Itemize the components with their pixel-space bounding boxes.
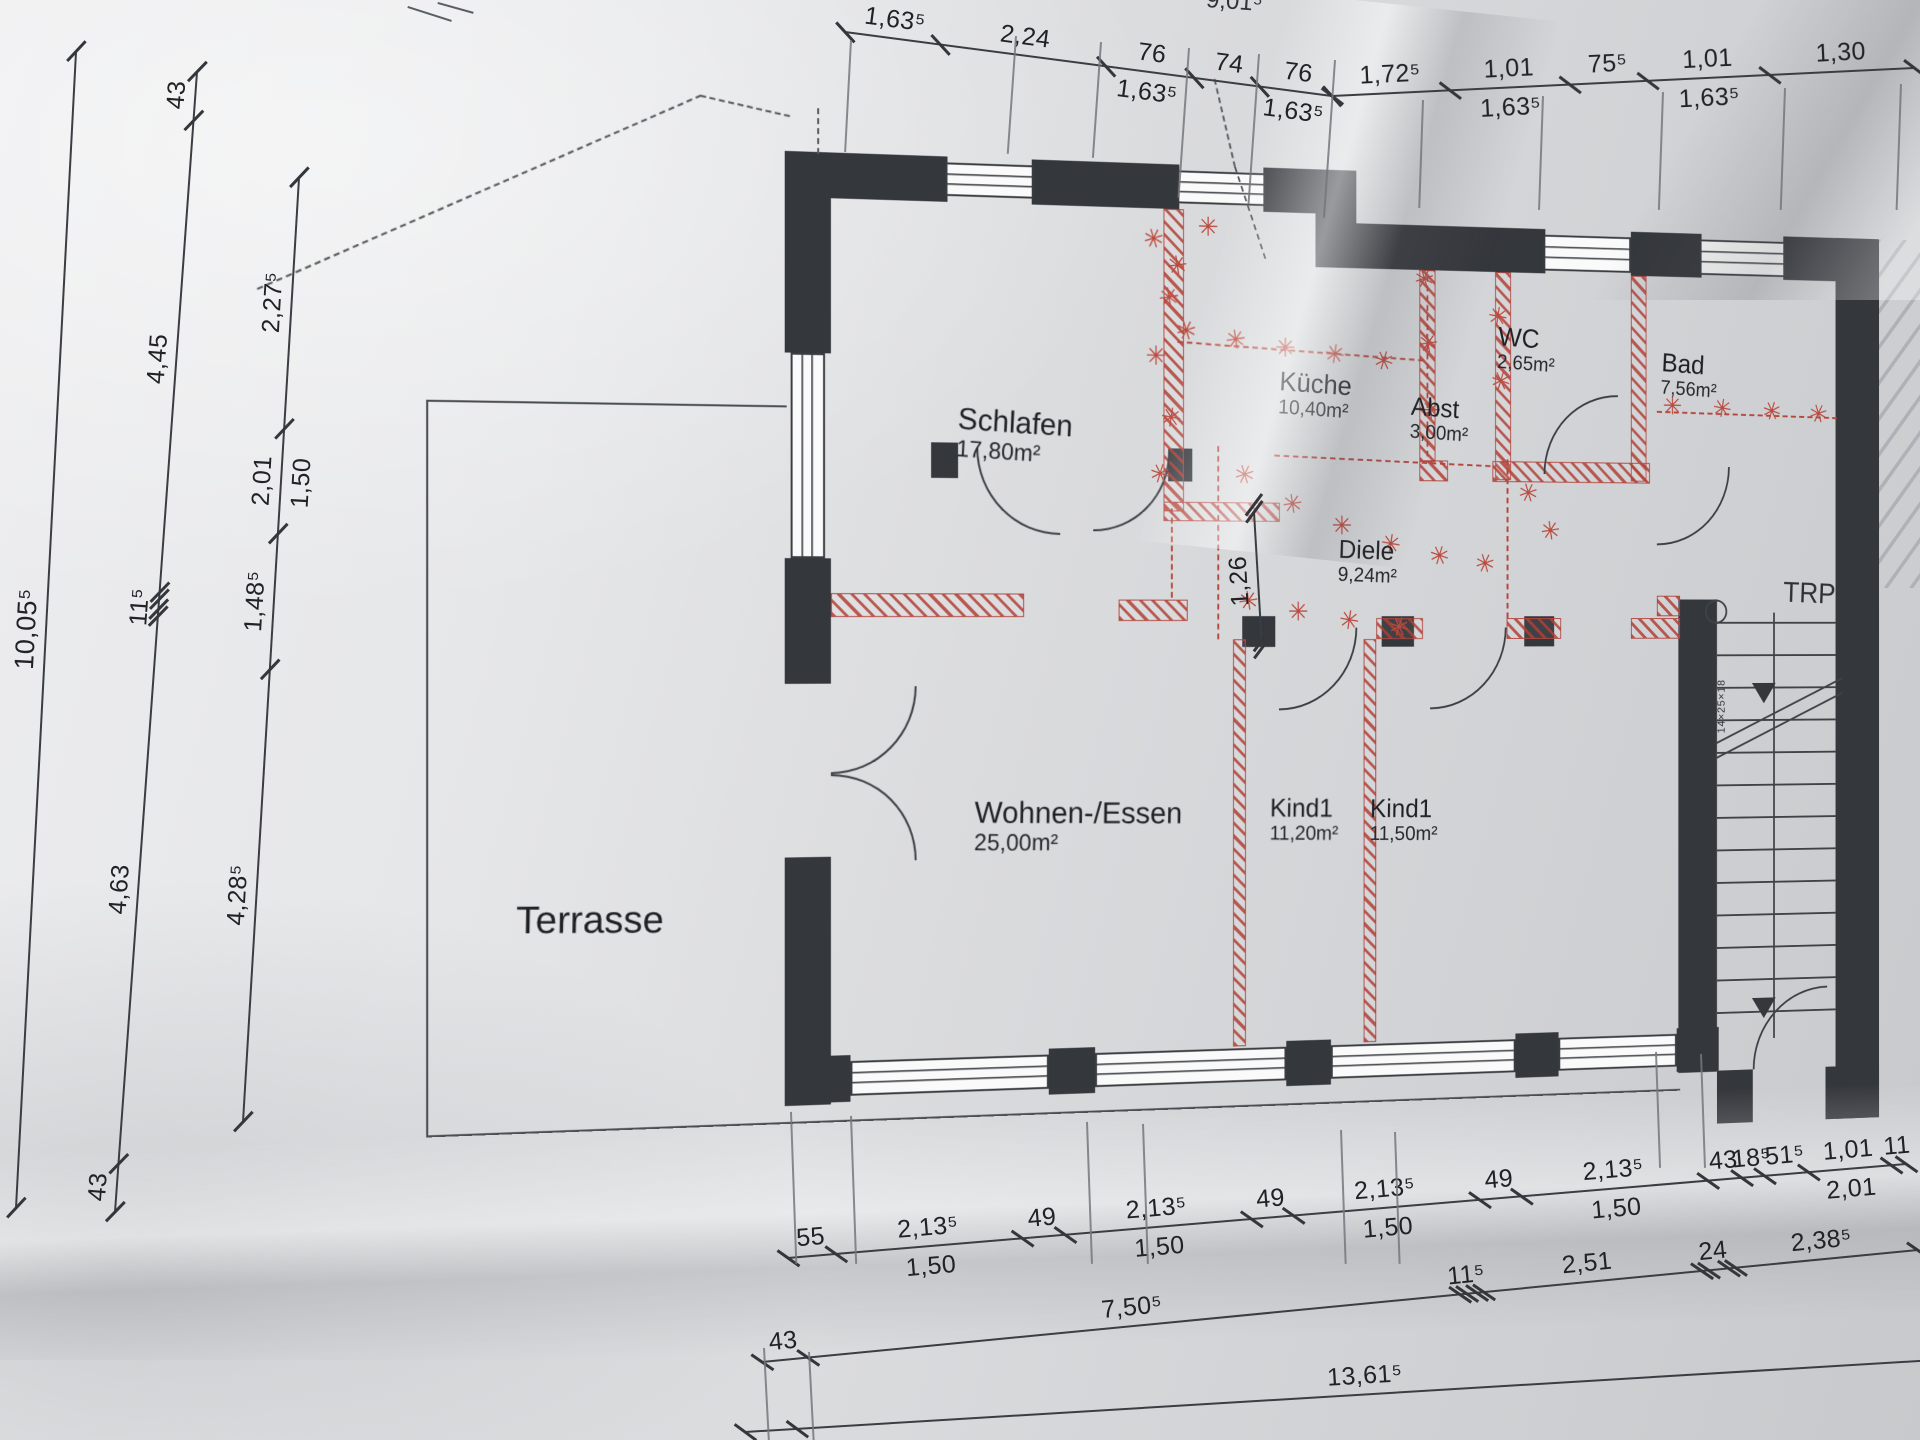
stair-direction-arrow [1752, 683, 1776, 704]
demolition-mark: ✳ [1515, 478, 1541, 509]
demolition-wall [1163, 502, 1279, 522]
dimension-value: 2,51 [1561, 1247, 1614, 1281]
stair-step [1717, 880, 1836, 885]
room-name: Kind1 [1270, 794, 1339, 823]
window [1177, 170, 1265, 206]
dimension-value: 49 [1255, 1183, 1286, 1214]
dimension-value-secondary: 1,50 [1590, 1192, 1643, 1225]
dimension-value: 43 [161, 80, 192, 111]
dimension-value: 2,01 [247, 455, 279, 507]
clipped-top-dimension: 9,01⁵ [1205, 0, 1263, 18]
stair-step [1717, 654, 1836, 656]
dimension-value: 1,01 [1483, 53, 1535, 84]
demolition-wall [831, 593, 1024, 617]
floorplan-photo: TRPHA. 14×25×18 ✳✳✳✳✳✳✳✳✳✳✳✳✳✳✳✳✳✳✳✳✳✳✳✳… [0, 0, 1920, 1440]
demolition-mark: ✳ [1806, 400, 1831, 430]
dashed-outline-line [1214, 79, 1236, 167]
demolition-wall [1631, 618, 1680, 639]
dimension-value: 2,38⁵ [1790, 1223, 1854, 1258]
stair-step [1717, 783, 1836, 787]
demolition-mark: ✳ [1337, 607, 1361, 636]
door-arc [831, 686, 917, 774]
dimension-value: 1,26 [1224, 555, 1256, 607]
window [1544, 235, 1631, 273]
room-label-schlafen: Schlafen17,80m² [956, 402, 1074, 470]
room-area: 9,24m² [1337, 564, 1397, 589]
dimension-value-secondary: 2,01 [1825, 1173, 1878, 1206]
dimension-value: 43 [83, 1172, 114, 1203]
wall-segment [931, 442, 958, 478]
room-area: 25,00m² [974, 830, 1182, 856]
stair-step [1717, 815, 1836, 819]
dimension-value: 4,63 [103, 863, 136, 915]
demolition-dashed-line [1171, 508, 1173, 597]
demolition-dashed-line [1217, 446, 1219, 639]
demolition-mark: ✳ [1472, 549, 1498, 580]
dimension-value-secondary: 1,63⁵ [1479, 92, 1541, 124]
room-label-kueche: Küche10,40m² [1278, 366, 1353, 424]
demolition-wall [1631, 276, 1647, 482]
window [1700, 239, 1785, 277]
door-arc [831, 773, 917, 862]
extension-line [1896, 84, 1902, 210]
room-area: 3,00m² [1409, 421, 1468, 447]
dashed-outline-line [257, 95, 701, 290]
demolition-wall [1233, 639, 1246, 1046]
stair-step [1717, 718, 1836, 721]
room-area: 7,56m² [1660, 377, 1717, 403]
wall-segment [1515, 1032, 1558, 1078]
demolition-dashed-line [1507, 459, 1509, 618]
wall-segment [785, 1055, 851, 1104]
dimension-value: 2,13⁵ [896, 1211, 959, 1245]
room-area: 10,40m² [1278, 396, 1351, 424]
room-label-bad: Bad7,56m² [1660, 348, 1719, 403]
dimension-value: 4,45 [142, 333, 175, 385]
room-label-abst: Abst3,00m² [1409, 392, 1470, 447]
wall-segment [1717, 1069, 1753, 1123]
dashed-outline-line [700, 95, 790, 117]
window [946, 162, 1034, 198]
demolition-wall [1507, 618, 1562, 639]
dimension-value: 1,01 [1682, 44, 1734, 75]
stair-direction-arrow [1752, 997, 1776, 1018]
demolition-mark: ✳ [1165, 252, 1190, 281]
dimension-value-secondary: 1,50 [905, 1250, 958, 1283]
demolition-wall [1119, 600, 1188, 621]
wall-segment [1356, 223, 1545, 273]
demolition-wall [1657, 596, 1680, 617]
terrace-boundary-line [426, 400, 428, 1138]
dimension-value: 49 [1027, 1202, 1058, 1233]
window [1331, 1039, 1515, 1079]
dimension-value-secondary: 1,50 [1362, 1212, 1415, 1245]
dimension-value: 1,30 [1815, 37, 1867, 68]
dimension-value: 4,28⁵ [222, 864, 255, 927]
room-label-diele: Diele9,24m² [1337, 535, 1398, 589]
dimension-value-secondary: 1,63⁵ [1678, 82, 1740, 114]
dimension-value: 2,27⁵ [257, 271, 290, 334]
dimension-value: 13,61⁵ [1326, 1359, 1403, 1392]
dimension-value: 76 [1136, 37, 1168, 69]
demolition-mark: ✳ [1281, 490, 1305, 519]
window [791, 353, 825, 559]
dimension-value: 75⁵ [1587, 49, 1628, 80]
window [850, 1055, 1048, 1096]
stair-start-circle [1705, 600, 1727, 624]
stair-step [1717, 847, 1836, 851]
demolition-mark: ✳ [1370, 346, 1397, 377]
room-label-wc: WC2,65m² [1497, 322, 1557, 378]
wall-segment [1032, 159, 1180, 209]
demolition-mark: ✳ [1288, 599, 1309, 625]
wall-segment [1316, 169, 1357, 268]
demolition-dashed-line [1274, 455, 1490, 468]
demolition-mark: ✳ [1275, 335, 1296, 361]
wall-segment [1631, 232, 1702, 278]
stair-step [1717, 912, 1836, 917]
door-arc [1544, 394, 1618, 475]
dimension-value: 7,50⁵ [1100, 1290, 1164, 1325]
room-name: Wohnen-/Essen [974, 796, 1182, 831]
wall-segment [785, 558, 831, 684]
room-name: Abst [1410, 392, 1470, 425]
dimension-value: 2,13⁵ [1125, 1191, 1188, 1225]
window [1095, 1047, 1286, 1087]
dimension-value: 76 [1282, 57, 1314, 89]
demolition-mark: ✳ [1224, 326, 1248, 355]
demolition-mark: ✳ [1426, 541, 1453, 572]
room-label-kind1b: Kind111,50m² [1369, 794, 1438, 845]
demolition-mark: ✳ [1416, 330, 1440, 358]
demolition-mark: ✳ [1323, 340, 1347, 369]
neighbor-hatch-area [1877, 239, 1920, 588]
demolition-mark: ✳ [1157, 284, 1182, 313]
wall-segment [1678, 599, 1717, 1072]
dimension-value-secondary: 1,50 [1133, 1231, 1186, 1264]
room-label-wohnen: Wohnen-/Essen25,00m² [974, 796, 1183, 857]
room-name: Diele [1338, 535, 1398, 566]
dashed-outline-line [817, 108, 819, 154]
room-label-kind1a: Kind111,20m² [1269, 794, 1339, 846]
room-name: Terrasse [516, 899, 665, 943]
room-name: WC [1498, 322, 1557, 356]
dimension-value: 55 [795, 1222, 826, 1253]
room-area: 11,20m² [1269, 823, 1338, 846]
dimension-value: 43 [768, 1326, 799, 1358]
room-name: Kind1 [1370, 794, 1438, 823]
stair-step [1717, 976, 1836, 981]
demolition-mark: ✳ [1145, 343, 1166, 370]
terrace-boundary-line [428, 1089, 1680, 1138]
room-area: 2,65m² [1497, 351, 1556, 378]
dimension-value: 10,05⁵ [9, 588, 44, 671]
dimension-value: 2,13⁵ [1353, 1172, 1416, 1206]
dimension-value-secondary: 1,50 [285, 457, 317, 509]
demolition-mark: ✳ [1759, 397, 1784, 427]
dimension-value: 1,48⁵ [239, 570, 272, 633]
demolition-mark: ✳ [1539, 517, 1562, 545]
dimension-value: 74 [1213, 48, 1245, 80]
stair-step [1717, 751, 1836, 754]
stair-center-line [1773, 613, 1775, 1039]
room-label-terrasse: Terrasse [516, 899, 665, 943]
door-arc [1279, 628, 1357, 711]
wall-segment [1825, 1065, 1879, 1119]
terrace-boundary-line [428, 400, 786, 408]
window [1559, 1034, 1677, 1071]
dimension-value: 1,01 [1822, 1134, 1875, 1167]
wall-segment [1286, 1040, 1331, 1087]
stair-step [1717, 622, 1836, 624]
stair-break-line [1715, 692, 1842, 759]
dimension-value: 2,13⁵ [1581, 1153, 1644, 1187]
demolition-mark: ✳ [1198, 214, 1219, 241]
room-name: Bad [1661, 348, 1718, 381]
dimension-value: 24 [1697, 1235, 1728, 1267]
wall-segment [785, 151, 948, 202]
wall-segment [1049, 1047, 1095, 1094]
demolition-mark: ✳ [1231, 460, 1258, 491]
stair-step [1717, 944, 1836, 949]
room-area: 11,50m² [1369, 823, 1437, 846]
door-arc [1657, 466, 1730, 546]
door-arc [1430, 628, 1506, 710]
dimension-value: 1,72⁵ [1359, 59, 1421, 91]
demolition-mark: ✳ [1159, 404, 1184, 434]
